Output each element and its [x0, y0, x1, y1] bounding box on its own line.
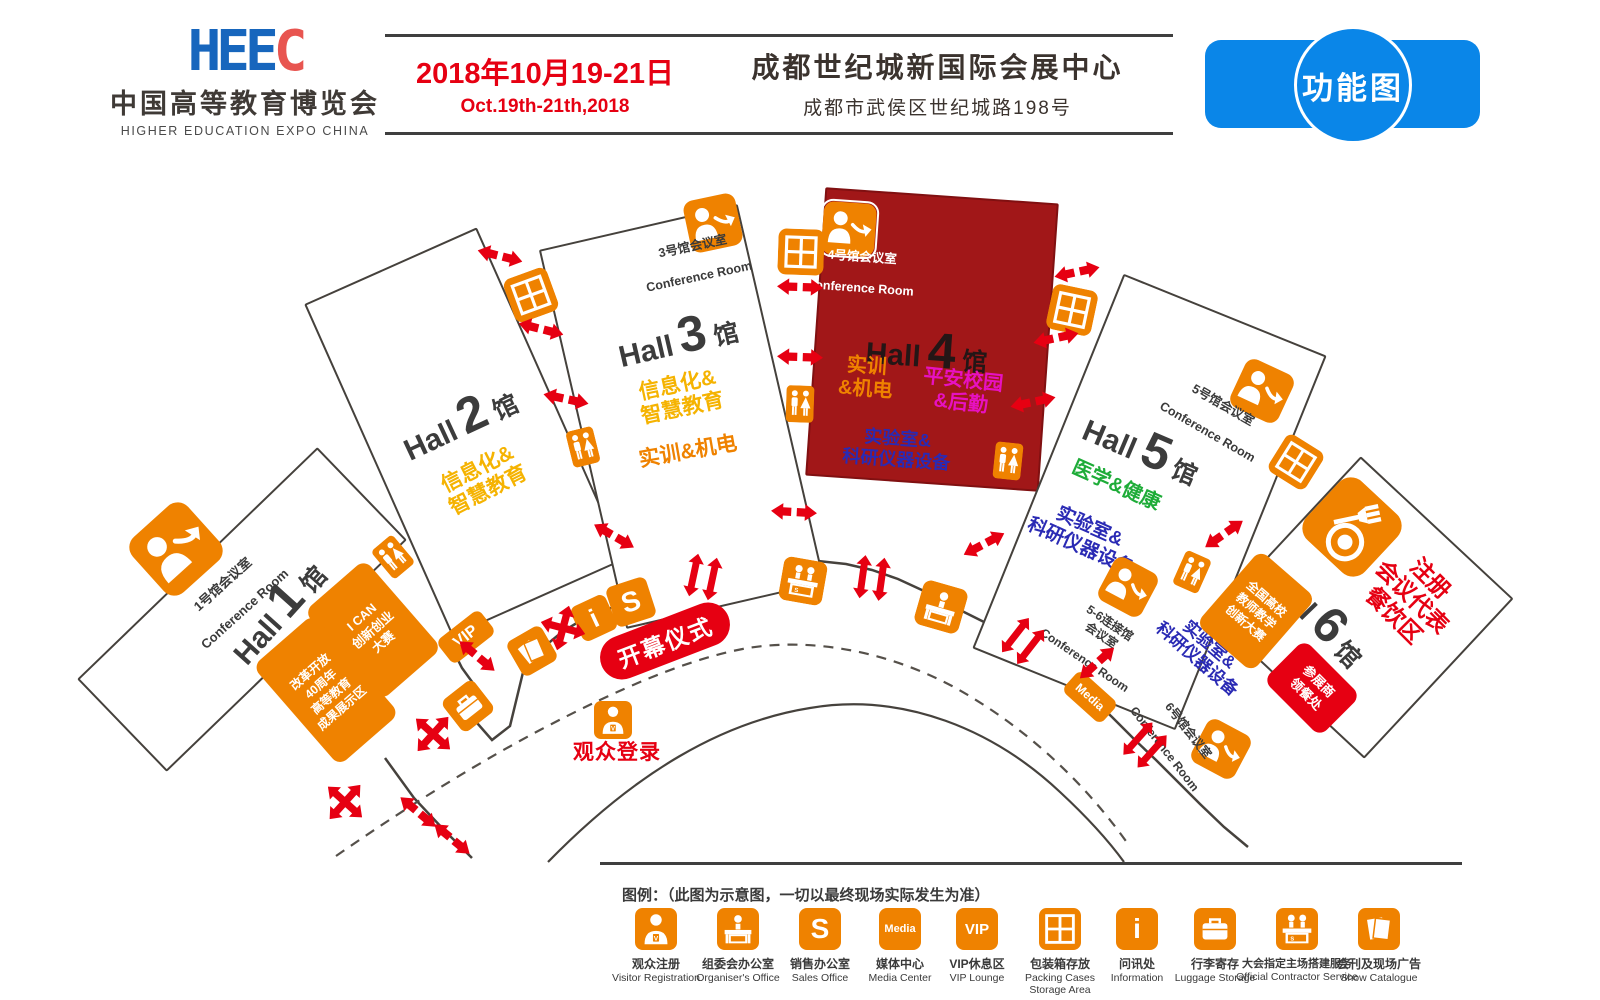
show-catalogue-icon	[1317, 906, 1441, 952]
toilet-icon	[785, 385, 814, 423]
hall4-conference-cn: 4号馆会议室	[808, 246, 916, 269]
zone-hall4-training: 实训 &机电	[837, 353, 895, 402]
legend-cn: 会刊及现场广告	[1317, 955, 1441, 972]
visitor-login-label: 观众登录	[573, 741, 661, 765]
legend-title: 图例：（此图为示意图，一切以最终现场实际发生为准）	[622, 884, 990, 905]
zone-hall4-lab-equipment: 实验室& 科研仪器设备	[842, 425, 953, 473]
zone-hall4-safe-campus: 平安校园 &后勤	[920, 365, 1004, 419]
legend-item-show-catalogue: 会刊及现场广告 Show Catalogue	[1317, 906, 1441, 984]
vip-word: VIP	[956, 908, 998, 950]
info-letter: i	[1116, 908, 1158, 950]
plaza-dashed-arc	[336, 645, 1128, 856]
double-arrow-icon	[771, 502, 818, 521]
sales-letter: S	[799, 908, 841, 950]
plaza-solid-arc	[548, 704, 1124, 862]
double-arrow-icon	[777, 278, 824, 297]
hall3-conference-cn: 3号馆会议室	[638, 228, 747, 266]
visitor-registration-icon	[594, 701, 632, 739]
packing-cases-icon	[777, 228, 825, 276]
gate-arrows-icon	[849, 552, 895, 603]
hall-3-name: Hall	[616, 330, 677, 376]
toilet-icon	[992, 441, 1024, 481]
legend-en: Show Catalogue	[1317, 972, 1441, 984]
hall-3-number: 3	[672, 302, 712, 365]
legend-divider	[600, 862, 1462, 865]
hall3-conference-en: Conference Room	[645, 258, 754, 296]
double-arrow-icon	[777, 348, 824, 367]
official-contractor-icon	[778, 556, 829, 607]
